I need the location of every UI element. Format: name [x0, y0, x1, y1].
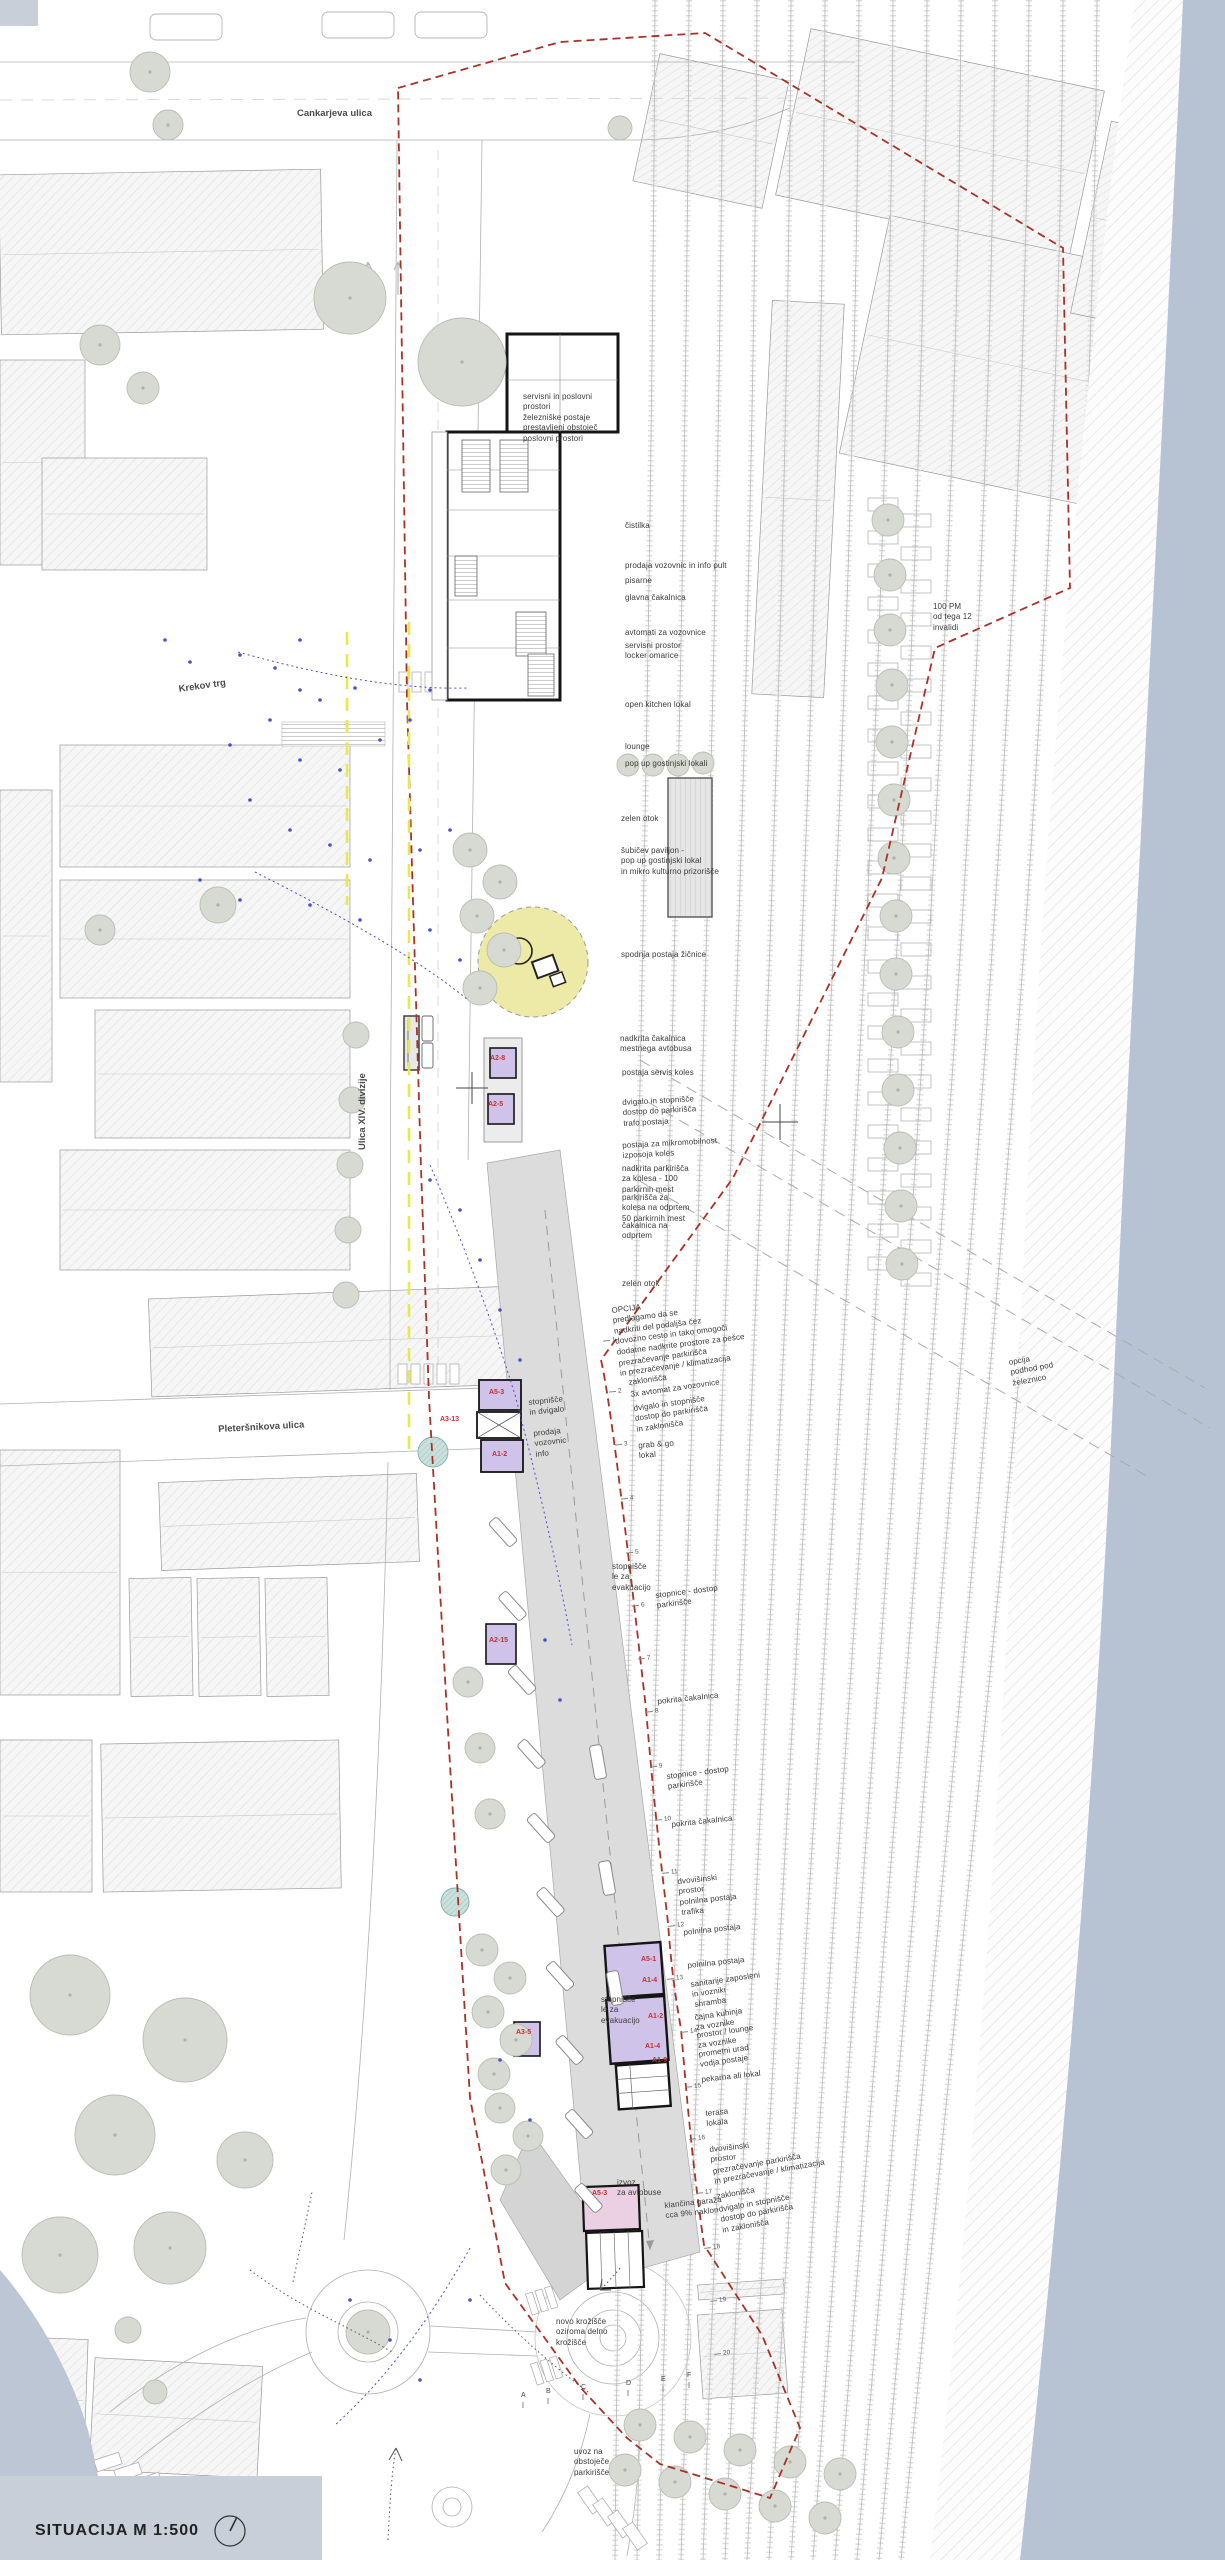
stop-number: 18	[704, 2243, 721, 2252]
annotation: dvovišinski prostor polnilna postaja	[677, 1871, 737, 1908]
stop-number: 10	[655, 1815, 672, 1824]
unit-label: A5-3	[592, 2190, 607, 2197]
annotation: grab & go lokal	[638, 1439, 675, 1462]
unit-label: A1-2	[492, 1451, 507, 1458]
annotation: nadkrita čakalnica mestnega avtobusa	[620, 1034, 692, 1055]
annotation: servisni prostor locker omarice	[625, 641, 681, 662]
stop-number: 8	[646, 1707, 659, 1715]
annotation: dvigalo in stopnišče dostop do parkirišč…	[622, 1094, 697, 1129]
annotation: klančina garaža cca 9% naklon	[664, 2195, 723, 2222]
annotation: servisni in poslovni prostori železniške…	[523, 392, 598, 444]
annotation: zelen otok	[621, 814, 658, 824]
annotation: sanitarije zaposleni in vozniki	[690, 1970, 762, 2000]
street-label: Krekov trg	[178, 677, 227, 695]
stop-number: 19	[710, 2296, 727, 2305]
annotation: stopnišče le za evakuacijo	[612, 1562, 651, 1593]
unit-label: A3-5	[516, 2029, 531, 2036]
stop-number: 1	[603, 1336, 616, 1344]
platform-letter: B	[546, 2388, 551, 2395]
annotation: open kitchen lokal	[625, 700, 691, 710]
annotation: lounge	[625, 742, 650, 752]
annotation: zelen otok	[622, 1279, 659, 1289]
stop-number: 12	[668, 1921, 685, 1930]
annotation: polnilna postaja	[683, 1922, 741, 1938]
platform-letter: D	[626, 2380, 631, 2387]
unit-label: A2-8	[490, 1055, 505, 1062]
annotation: prodaja vozovnic info	[533, 1426, 568, 1460]
stop-number: 13	[667, 1974, 684, 1983]
unit-label: A5-1	[641, 1956, 656, 1963]
stop-number: 6	[632, 1601, 645, 1609]
annotation: izvoz za avtobuse	[617, 2178, 661, 2199]
annotation: uvoz na obstoječe parkirišče	[574, 2447, 609, 2478]
annotation: glavna čakalnica	[625, 593, 686, 603]
annotation: trafika	[681, 1906, 704, 1919]
annotation: postaja za mikromobilnost izposoja koles	[622, 1136, 718, 1162]
annotation: dvigalo in stopnišče dostop do parkirišč…	[633, 1394, 710, 1435]
labels-layer: SITUACIJA M 1:500 Cankarjeva ulicaKrekov…	[0, 0, 1225, 2560]
annotation: stopnišče le za evakuacijo	[601, 1995, 640, 2026]
annotation: avtomati za vozovnice	[625, 628, 706, 638]
unit-label: A1-9	[652, 2057, 667, 2064]
annotation: pisarne	[625, 576, 652, 586]
platform-letter: F	[687, 2372, 691, 2379]
stop-number: 20	[714, 2349, 731, 2358]
stop-number: 2	[609, 1387, 622, 1395]
annotation: stopnice - dostop parkirišče	[655, 1583, 720, 1611]
annotation: spodnja postaja žičnice	[621, 950, 706, 960]
stop-number: 5	[626, 1548, 639, 1556]
annotation: nadkrita parkirišča za kolesa - 100 park…	[622, 1164, 689, 1195]
stop-number: 15	[685, 2082, 702, 2091]
street-label: Pleteršnikova ulica	[218, 1419, 305, 1434]
stop-number: 7	[638, 1654, 651, 1662]
site-plan: SITUACIJA M 1:500 Cankarjeva ulicaKrekov…	[0, 0, 1225, 2560]
stop-number: 16	[689, 2134, 706, 2143]
annotation: terasa lokala	[705, 2107, 730, 2130]
annotation: opcija podhod pod železnico	[1008, 1350, 1056, 1388]
street-label: Cankarjeva ulica	[297, 108, 372, 119]
annotation: čakalnica na odprtem	[622, 1221, 668, 1242]
annotation: šubičev paviljon - pop up gostinjski lok…	[621, 846, 719, 877]
plan-title: SITUACIJA M 1:500	[35, 2522, 199, 2540]
annotation: pekarna ali lokal	[701, 2069, 761, 2086]
annotation: postaja servis koles	[622, 1068, 694, 1078]
annotation: novo krožišče oziroma delno krožišče	[556, 2317, 608, 2348]
annotation: parkirišča za kolesa na odprtem 50 parki…	[622, 1193, 690, 1224]
annotation: 100 PM od tega 12 invalidi	[933, 602, 972, 633]
platform-letter: C	[581, 2384, 586, 2391]
unit-label: A5-3	[489, 1389, 504, 1396]
unit-label: A3-13	[440, 1416, 459, 1423]
annotation: stopnice - dostop parkirišče	[666, 1764, 731, 1792]
stop-number: 4	[621, 1494, 634, 1502]
annotation: čistilka	[625, 521, 650, 531]
street-label: Ulica XIV. divizije	[357, 1073, 368, 1150]
annotation: pop up gostinjski lokali	[625, 759, 707, 769]
unit-label: A1-4	[642, 1977, 657, 1984]
stop-number: 3	[615, 1440, 628, 1448]
unit-label: A1-4	[645, 2043, 660, 2050]
unit-label: A2-5	[488, 1101, 503, 1108]
platform-letter: E	[661, 2376, 666, 2383]
unit-label: A2-15	[489, 1637, 508, 1644]
annotation: pokrita čakalnica	[671, 1814, 733, 1831]
stop-number: 9	[650, 1762, 663, 1770]
stop-number: 14	[681, 2027, 698, 2036]
annotation: stopnišče in dvigalo	[528, 1394, 565, 1418]
annotation: pokrita čakalnica	[657, 1691, 719, 1708]
stop-number: 11	[662, 1868, 678, 1877]
platform-letter: A	[521, 2392, 526, 2399]
unit-label: A1-2	[648, 2013, 663, 2020]
annotation: prodaja vozovnic in info pult	[625, 561, 727, 571]
annotation: polnilna postaja	[687, 1955, 745, 1971]
